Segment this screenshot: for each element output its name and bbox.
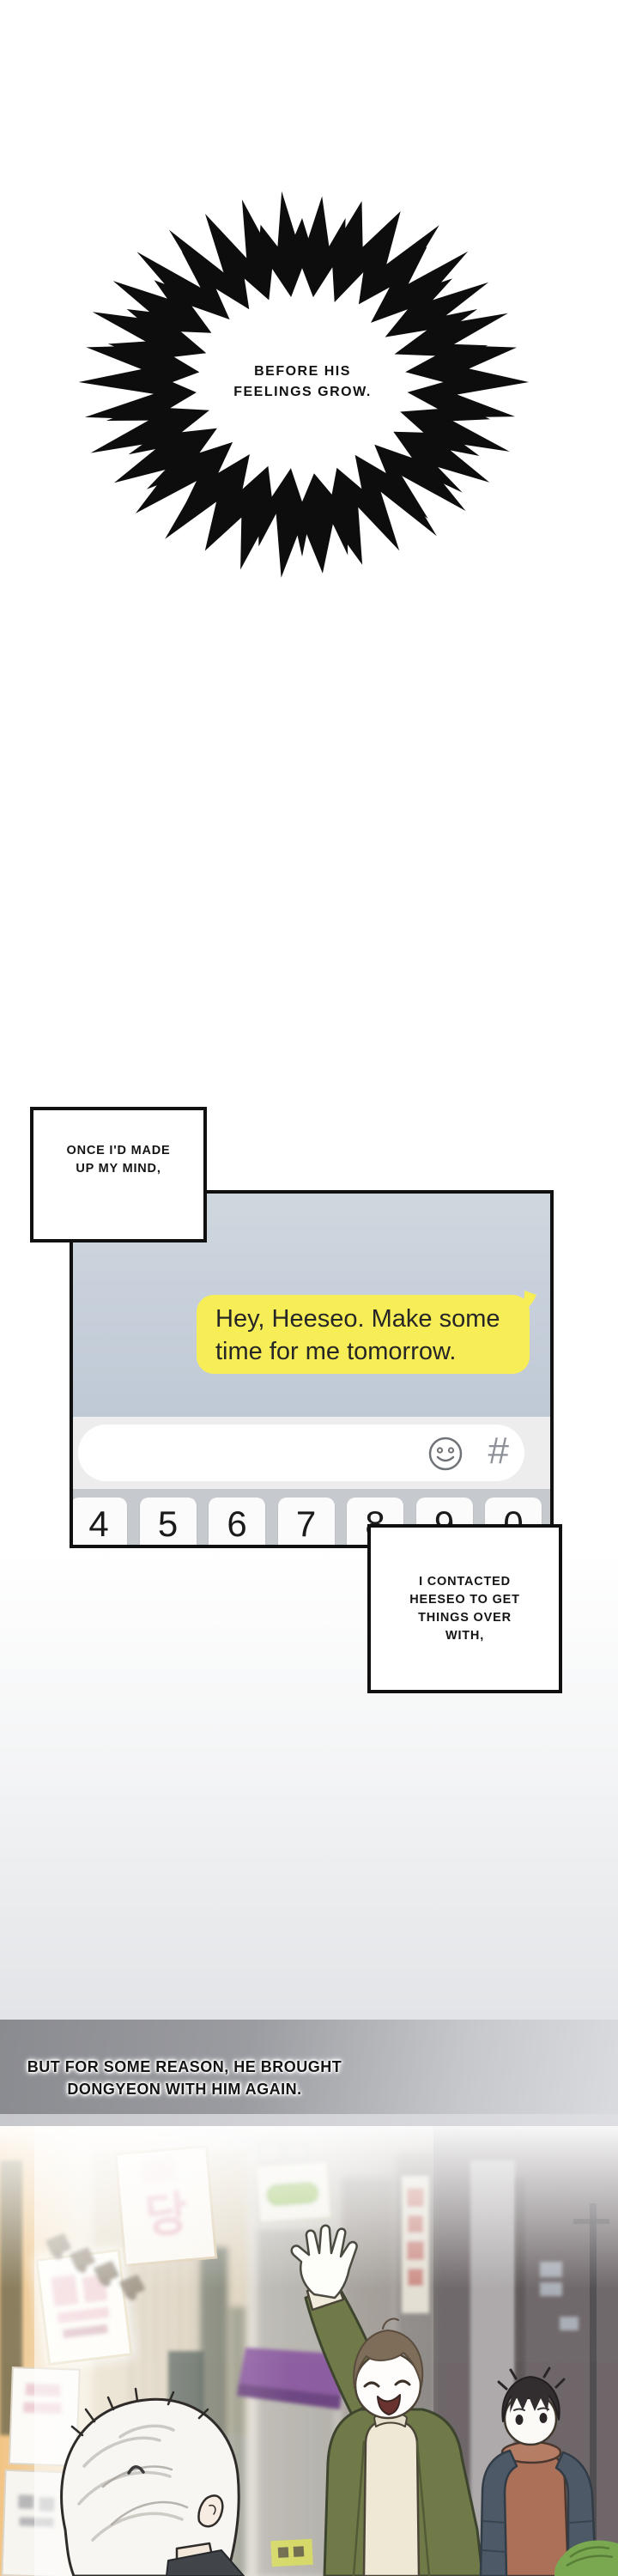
emoji-icon xyxy=(427,1435,464,1473)
keyboard-key-4: 4 xyxy=(70,1498,127,1548)
burst-speech-bubble: BEFORE HIS FEELINGS GROW. xyxy=(64,176,541,588)
narration-text: BUT FOR SOME REASON, HE BROUGHT DONGYEON… xyxy=(9,2056,360,2100)
eye-left xyxy=(516,2415,524,2425)
keyboard-key-7: 7 xyxy=(278,1498,335,1548)
cream-sweater xyxy=(364,2420,419,2576)
caption-line: I CONTACTED xyxy=(419,1573,511,1591)
sent-message-bubble: Hey, Heeseo. Make some time for me tomor… xyxy=(197,1295,530,1374)
burst-text: BEFORE HIS FEELINGS GROW. xyxy=(64,176,541,588)
caption-line: ONCE I'D MADE xyxy=(67,1142,171,1160)
webtoon-page: BEFORE HIS FEELINGS GROW. ONCE I'D MADE … xyxy=(0,0,618,2576)
burst-line-1: BEFORE HIS xyxy=(254,361,351,382)
street-scene: 당 xyxy=(0,2126,618,2576)
band-bottom-strip xyxy=(0,2114,618,2126)
phone-screenshot-panel: Hey, Heeseo. Make some time for me tomor… xyxy=(70,1190,554,1548)
message-line-1: Hey, Heeseo. Make some xyxy=(215,1303,530,1335)
caption-line: THINGS OVER xyxy=(418,1609,512,1627)
keyboard-key-6: 6 xyxy=(209,1498,265,1548)
narration-line-2: DONGYEON WITH HIM AGAIN. xyxy=(9,2078,360,2100)
caption-box-contacted: I CONTACTED HEESEO TO GET THINGS OVER WI… xyxy=(367,1524,562,1693)
caption-line: WITH, xyxy=(445,1627,484,1645)
caption-box-decided: ONCE I'D MADE UP MY MIND, xyxy=(30,1107,207,1242)
composer-bar: # xyxy=(73,1417,550,1489)
narration-line-1: BUT FOR SOME REASON, HE BROUGHT xyxy=(9,2056,360,2078)
caption-line: HEESEO TO GET xyxy=(409,1591,520,1609)
message-line-2: time for me tomorrow. xyxy=(215,1335,530,1368)
keyboard-key-5: 5 xyxy=(140,1498,197,1548)
burst-line-2: FEELINGS GROW. xyxy=(233,382,372,403)
eye-right xyxy=(540,2413,548,2423)
message-input: # xyxy=(78,1425,524,1481)
caption-line: UP MY MIND, xyxy=(76,1160,161,1178)
hash-icon: # xyxy=(488,1430,509,1473)
bubble-tail xyxy=(512,1290,537,1319)
